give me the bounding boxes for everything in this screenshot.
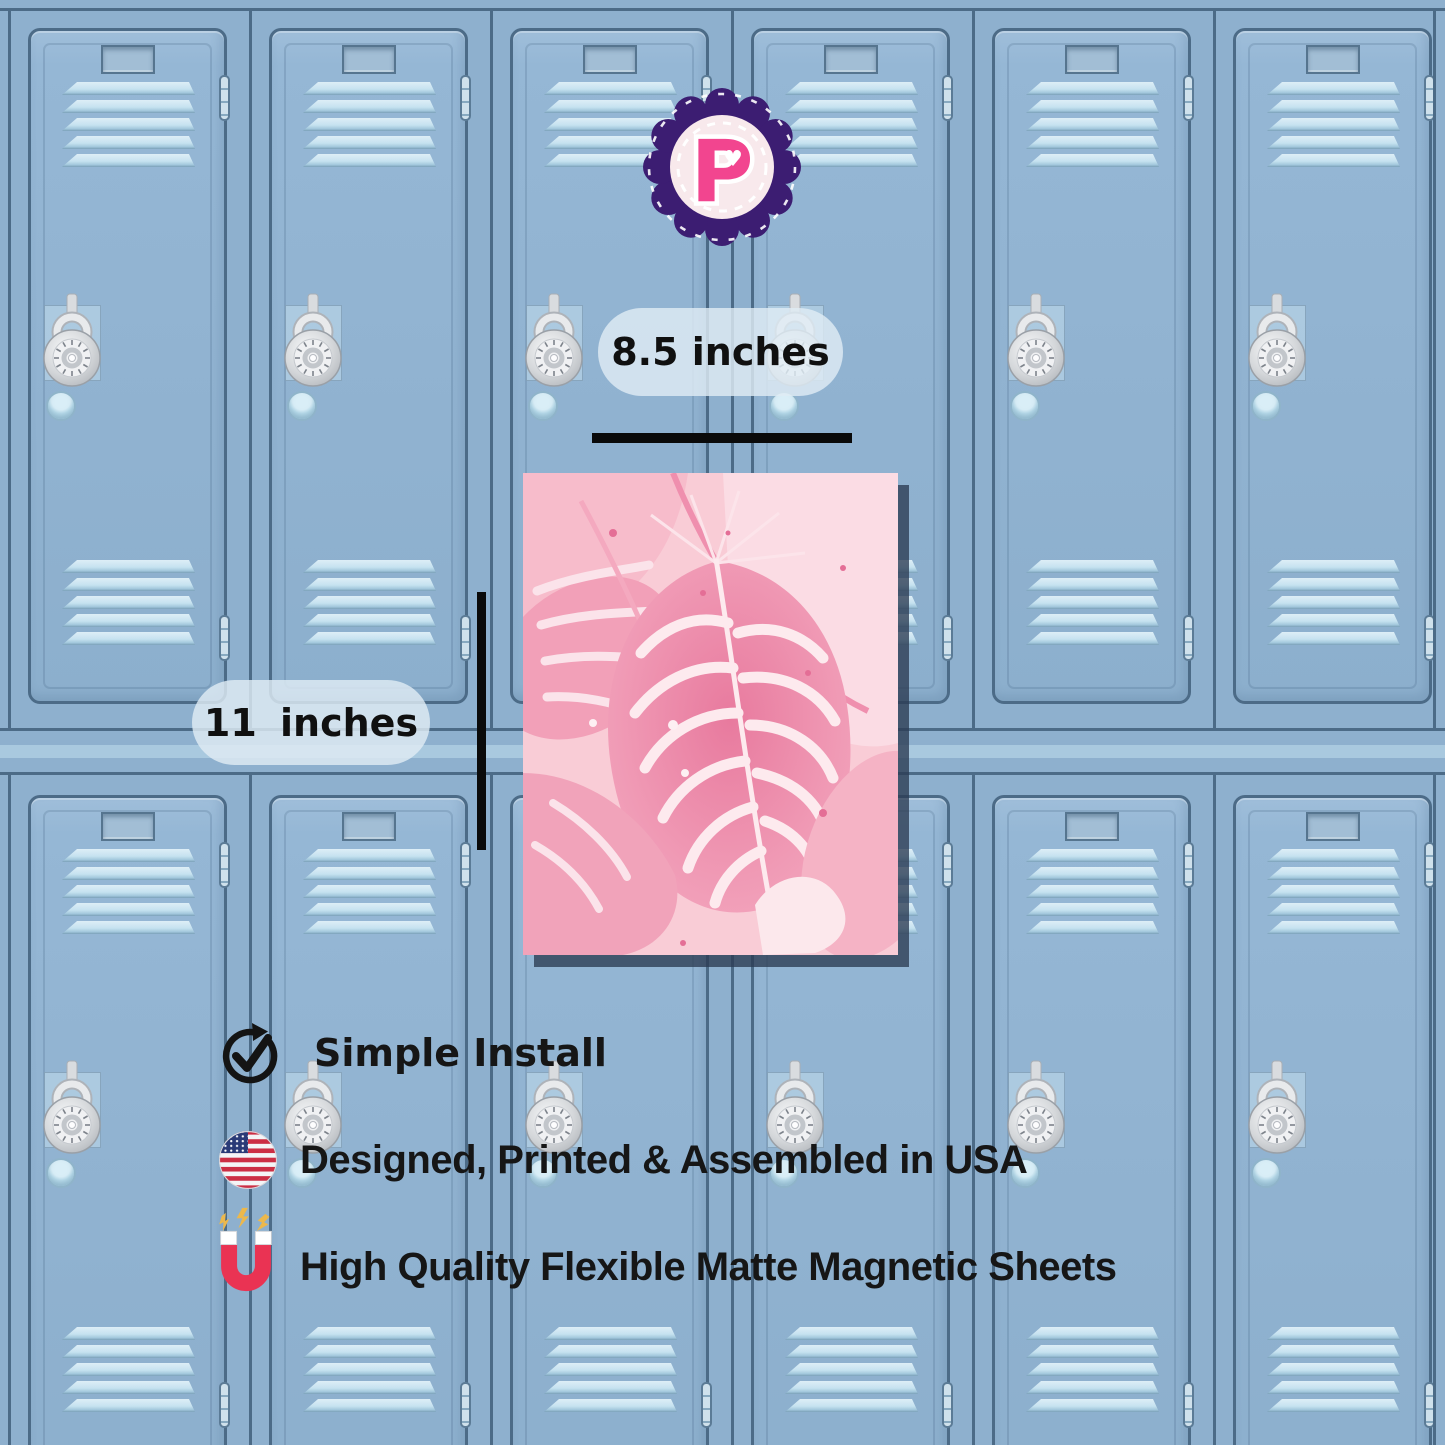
combination-lock-icon <box>522 292 586 388</box>
door-hinge <box>942 1382 953 1428</box>
vent-slat <box>1267 885 1400 898</box>
combination-lock-icon <box>1245 292 1309 388</box>
locker-frame-line <box>249 8 252 728</box>
door-hinge <box>942 75 953 121</box>
vent-slats-bottom <box>1267 560 1400 650</box>
vent-slats-top <box>62 82 195 172</box>
heart-icon: ♥ <box>723 147 743 172</box>
vent-slats-bottom <box>1267 1327 1400 1417</box>
vent-slat <box>1026 560 1159 573</box>
vent-slat <box>1267 154 1400 167</box>
door-hinge <box>219 615 230 661</box>
vent-slats-bottom <box>1026 560 1159 650</box>
door-hinge <box>942 842 953 888</box>
vent-slat <box>1267 903 1400 916</box>
door-hinge <box>1183 842 1194 888</box>
vent-slat <box>1267 1363 1400 1376</box>
product-infographic: P ♥ 8.5 inches 11 inches <box>0 0 1445 1445</box>
locker-frame-line <box>972 775 975 1445</box>
combination-lock-icon <box>281 292 345 388</box>
vent-slat <box>1267 632 1400 645</box>
locker-knob <box>1010 391 1040 421</box>
door-hinge <box>460 615 471 661</box>
locker-knob <box>528 391 558 421</box>
vent-slat <box>303 1327 436 1340</box>
vent-slat <box>62 885 195 898</box>
vent-slat <box>303 1345 436 1358</box>
vent-slats-top <box>62 849 195 939</box>
locker-name-plate <box>824 45 878 74</box>
vent-slat <box>1026 136 1159 149</box>
vent-slat <box>1026 1381 1159 1394</box>
vent-slat <box>1267 118 1400 131</box>
brand-badge: P ♥ <box>637 82 807 252</box>
vent-slat <box>1267 1381 1400 1394</box>
vent-slat <box>62 136 195 149</box>
vent-slat <box>1267 921 1400 934</box>
vent-slat <box>1026 1345 1159 1358</box>
vent-slat <box>544 1381 677 1394</box>
vent-slat <box>544 1363 677 1376</box>
vent-slat <box>1026 1363 1159 1376</box>
locker <box>1205 8 1445 728</box>
door-hinge <box>219 75 230 121</box>
door-hinge <box>1183 615 1194 661</box>
door-hinge <box>460 1382 471 1428</box>
locker-name-plate <box>583 45 637 74</box>
vent-slat <box>1026 867 1159 880</box>
vent-slat <box>303 632 436 645</box>
vent-slats-bottom <box>785 1327 918 1417</box>
vent-slats-top <box>303 82 436 172</box>
vent-slat <box>1026 885 1159 898</box>
vent-slat <box>1026 614 1159 627</box>
feature-simple-install: Simple Install <box>220 1022 607 1084</box>
locker-name-plate <box>1065 812 1119 841</box>
vent-slat <box>62 921 195 934</box>
vent-slat <box>785 1381 918 1394</box>
vent-slat <box>62 1345 195 1358</box>
locker-frame-right-line <box>1433 8 1436 728</box>
vent-slat <box>62 100 195 113</box>
vent-slat <box>1026 1399 1159 1412</box>
vent-slat <box>303 154 436 167</box>
vent-slat <box>62 1363 195 1376</box>
locker-knob <box>287 391 317 421</box>
vent-slat <box>303 1381 436 1394</box>
vent-slat <box>62 578 195 591</box>
vent-slat <box>785 1399 918 1412</box>
vent-slat <box>62 849 195 862</box>
combination-lock-icon <box>1004 292 1068 388</box>
vent-slat <box>303 867 436 880</box>
vent-slat <box>303 849 436 862</box>
locker-frame-right-line <box>1433 772 1436 1445</box>
magnet-icon <box>214 1206 278 1300</box>
door-hinge <box>219 1382 230 1428</box>
vent-slat <box>303 136 436 149</box>
vent-slat <box>544 1327 677 1340</box>
locker-knob <box>46 391 76 421</box>
vent-slats-bottom <box>544 1327 677 1417</box>
vent-slat <box>62 118 195 131</box>
vent-slat <box>62 632 195 645</box>
door-hinge <box>1183 1382 1194 1428</box>
vent-slat <box>303 921 436 934</box>
vent-slat <box>1026 100 1159 113</box>
feature-label: High Quality Flexible Matte Magnetic She… <box>300 1245 1116 1290</box>
vent-slats-bottom <box>303 560 436 650</box>
locker-name-plate <box>1065 45 1119 74</box>
vent-slat <box>62 1399 195 1412</box>
locker-frame-line <box>490 8 493 728</box>
locker-name-plate <box>342 812 396 841</box>
poster-preview <box>523 473 898 955</box>
height-measure-line <box>477 592 486 850</box>
combination-lock-icon <box>40 1059 104 1155</box>
locker-frame-line <box>8 775 11 1445</box>
vent-slat <box>62 82 195 95</box>
vent-slat <box>303 578 436 591</box>
locker-frame-line <box>8 8 11 728</box>
vent-slat <box>62 596 195 609</box>
locker <box>964 775 1205 1445</box>
width-dimension-label: 8.5 inches <box>598 308 843 396</box>
vent-slats-bottom <box>303 1327 436 1417</box>
vent-slat <box>785 1327 918 1340</box>
vent-slat <box>303 82 436 95</box>
door-hinge <box>942 615 953 661</box>
vent-slat <box>1267 578 1400 591</box>
vent-slat <box>62 1327 195 1340</box>
vent-slat <box>1267 100 1400 113</box>
locker-name-plate <box>1306 45 1360 74</box>
locker-frame-line <box>972 8 975 728</box>
vent-slat <box>1267 849 1400 862</box>
vent-slat <box>303 885 436 898</box>
feature-label: Designed, Printed & Assembled in USA <box>300 1138 1027 1183</box>
locker <box>241 8 482 728</box>
vent-slat <box>1267 560 1400 573</box>
vent-slat <box>1026 849 1159 862</box>
vent-slat <box>1267 82 1400 95</box>
vent-slat <box>1267 1327 1400 1340</box>
locker <box>964 8 1205 728</box>
vent-slat <box>1267 1345 1400 1358</box>
vent-slat <box>785 1363 918 1376</box>
vent-slats-bottom <box>62 560 195 650</box>
vent-slats-bottom <box>62 1327 195 1417</box>
feature-magnetic-sheets: High Quality Flexible Matte Magnetic She… <box>214 1206 1116 1300</box>
door-hinge <box>460 842 471 888</box>
check-circle-icon <box>220 1022 282 1084</box>
locker-name-plate <box>101 45 155 74</box>
vent-slat <box>62 867 195 880</box>
vent-slats-bottom <box>1026 1327 1159 1417</box>
vent-slat <box>1267 136 1400 149</box>
badge-letter: P <box>690 122 753 222</box>
vent-slat <box>303 1399 436 1412</box>
vent-slat <box>544 1399 677 1412</box>
vent-slat <box>1267 614 1400 627</box>
width-dimension-text: 8.5 inches <box>611 330 830 374</box>
vent-slat <box>303 100 436 113</box>
locker-knob <box>1251 1158 1281 1188</box>
vent-slat <box>1026 596 1159 609</box>
vent-slat <box>1267 867 1400 880</box>
monstera-artwork <box>523 473 898 955</box>
feature-made-in-usa: Designed, Printed & Assembled in USA <box>218 1130 1027 1190</box>
vent-slat <box>303 903 436 916</box>
locker <box>0 775 241 1445</box>
combination-lock-icon <box>1245 1059 1309 1155</box>
vent-slats-top <box>1267 82 1400 172</box>
vent-slats-top <box>303 849 436 939</box>
vent-slat <box>62 154 195 167</box>
locker-name-plate <box>342 45 396 74</box>
door-hinge <box>701 1382 712 1428</box>
vent-slat <box>544 1345 677 1358</box>
vent-slat <box>1026 1327 1159 1340</box>
vent-slat <box>1267 1399 1400 1412</box>
locker <box>241 775 482 1445</box>
locker-knob <box>1251 391 1281 421</box>
vent-slat <box>303 118 436 131</box>
vent-slat <box>1267 596 1400 609</box>
vent-slats-top <box>1026 849 1159 939</box>
door-hinge <box>1183 75 1194 121</box>
vent-slat <box>62 903 195 916</box>
door-hinge <box>460 75 471 121</box>
vent-slat <box>1026 578 1159 591</box>
width-measure-line <box>592 433 852 443</box>
vent-slat <box>785 1345 918 1358</box>
vent-slat <box>62 614 195 627</box>
usa-flag-icon <box>218 1130 278 1190</box>
door-hinge <box>219 842 230 888</box>
vent-slat <box>62 1381 195 1394</box>
locker-frame-line <box>1213 8 1216 728</box>
vent-slat <box>1026 82 1159 95</box>
vent-slat <box>1026 903 1159 916</box>
height-dimension-label: 11 inches <box>192 680 430 765</box>
vent-slat <box>1026 154 1159 167</box>
locker-frame-line <box>1213 775 1216 1445</box>
combination-lock-icon <box>40 292 104 388</box>
feature-label: Simple Install <box>314 1031 607 1075</box>
vent-slat <box>1026 921 1159 934</box>
vent-slat <box>1026 118 1159 131</box>
vent-slat <box>303 560 436 573</box>
vent-slat <box>303 596 436 609</box>
vent-slat <box>1026 632 1159 645</box>
locker-frame-top-line <box>0 8 1445 11</box>
locker-name-plate <box>1306 812 1360 841</box>
vent-slats-top <box>1026 82 1159 172</box>
vent-slat <box>303 614 436 627</box>
locker <box>0 8 241 728</box>
locker <box>1205 775 1445 1445</box>
vent-slat <box>62 560 195 573</box>
locker-name-plate <box>101 812 155 841</box>
vent-slat <box>303 1363 436 1376</box>
locker-knob <box>46 1158 76 1188</box>
height-dimension-text: 11 inches <box>204 701 418 745</box>
vent-slats-top <box>1267 849 1400 939</box>
locker-frame-line <box>490 775 493 1445</box>
locker-frame-line <box>249 775 252 1445</box>
